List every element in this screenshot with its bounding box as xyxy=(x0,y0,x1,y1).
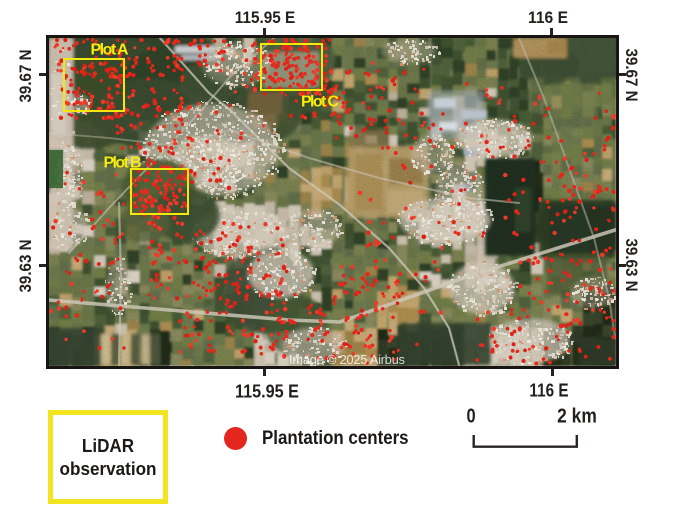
svg-text:Plot B: Plot B xyxy=(104,155,142,172)
svg-text:Plot A: Plot A xyxy=(91,42,129,59)
svg-text:Image © 2025 Airbus: Image © 2025 Airbus xyxy=(289,352,406,366)
svg-text:Plot C: Plot C xyxy=(301,94,339,111)
